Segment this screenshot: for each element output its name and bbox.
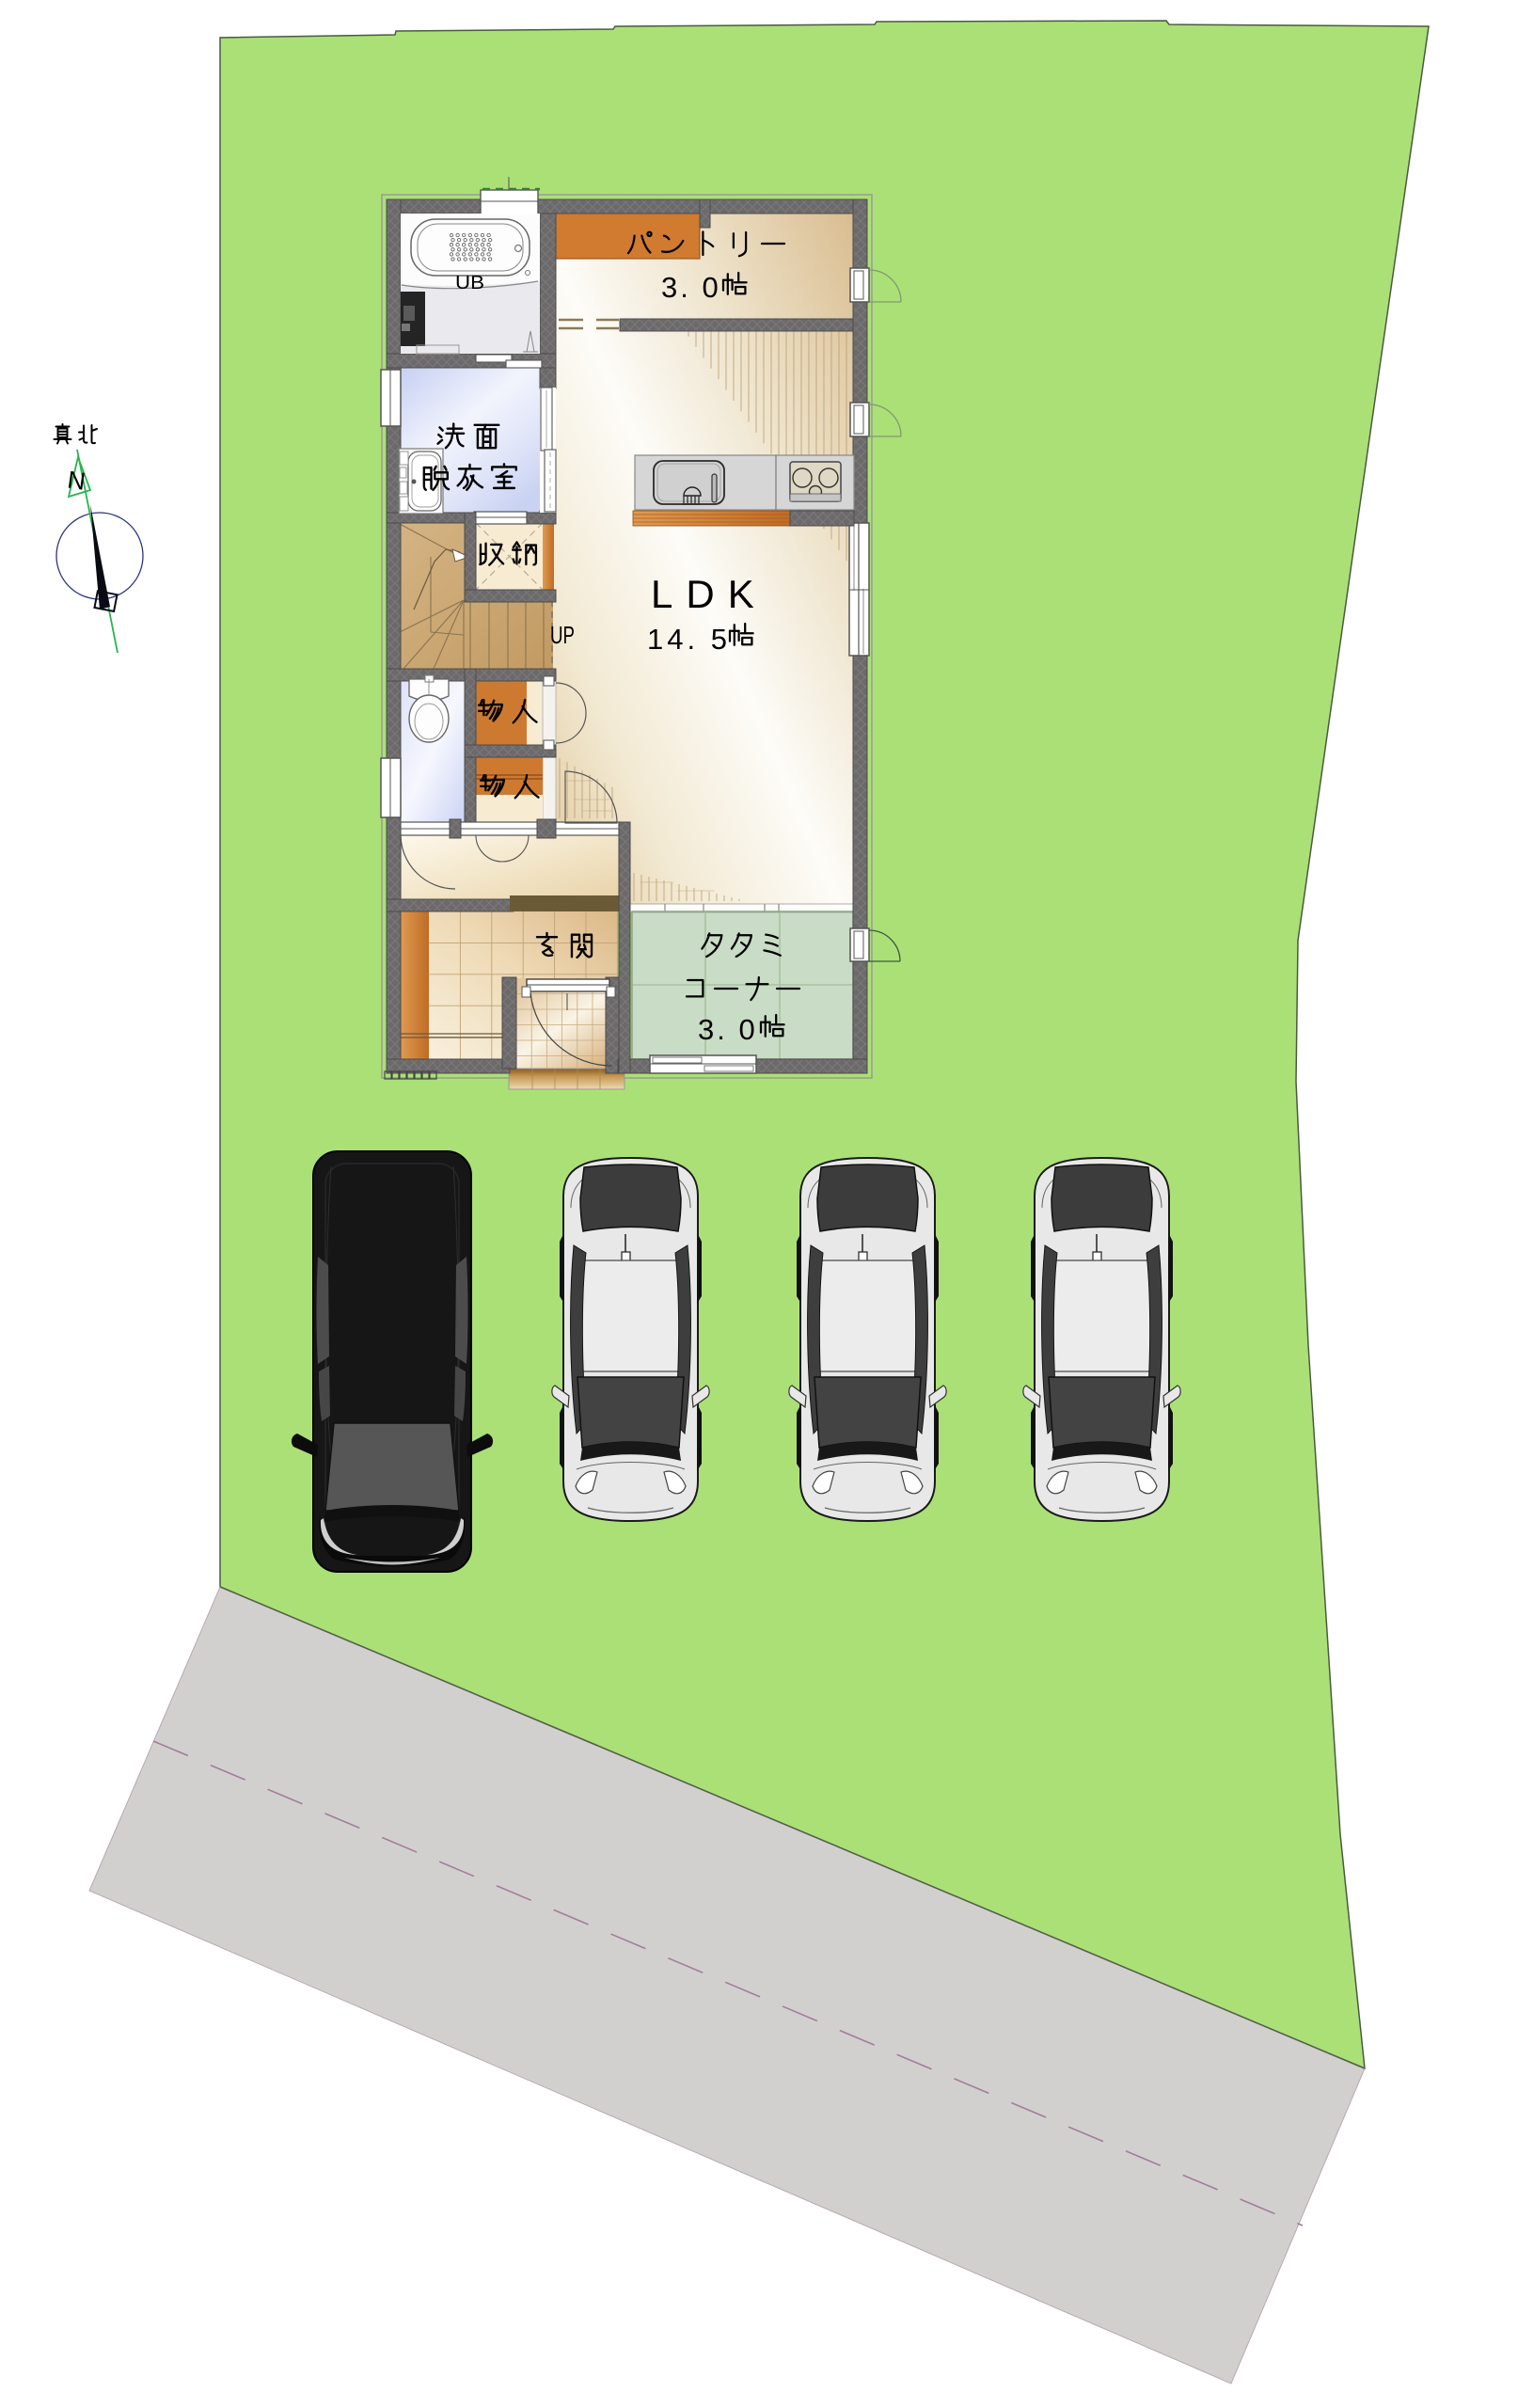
svg-text:3. 0: 3. 0: [661, 271, 721, 304]
svg-text:UB: UB: [455, 273, 484, 293]
svg-text:LDK: LDK: [651, 572, 767, 616]
svg-text:14. 5: 14. 5: [647, 623, 731, 656]
svg-text:3. 0: 3. 0: [698, 1013, 758, 1046]
svg-text:UP: UP: [550, 621, 575, 649]
